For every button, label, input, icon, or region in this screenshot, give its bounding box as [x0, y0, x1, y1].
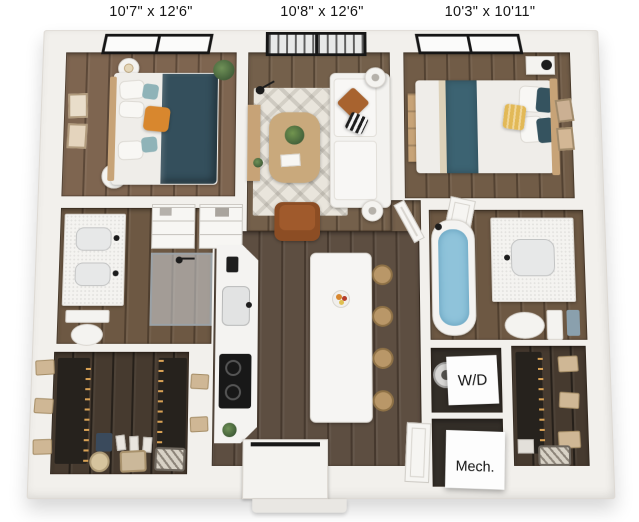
toilet-tank	[65, 310, 109, 323]
pillow-orange	[143, 105, 171, 132]
clock	[541, 60, 552, 70]
linen-closet	[151, 204, 195, 249]
shower-arm	[181, 258, 195, 260]
door-panel	[410, 428, 426, 478]
kitchen-faucet	[246, 302, 252, 308]
floor-plan-render: W/D Mech.	[0, 8, 639, 520]
wall-art	[66, 123, 87, 148]
pillow	[118, 100, 145, 118]
window-pane	[469, 37, 520, 52]
window-pane	[418, 37, 469, 52]
toilet-tank	[546, 310, 563, 340]
window-pane	[105, 37, 158, 52]
pillow-yellow	[502, 103, 526, 130]
bathtub-water	[438, 229, 470, 326]
stored-item	[160, 208, 172, 216]
bar-stool	[372, 306, 393, 327]
entry-console	[251, 442, 320, 446]
throw-blanket-teal	[445, 80, 478, 173]
plant	[253, 158, 263, 168]
duvet-teal	[160, 74, 218, 184]
pillow-teal	[142, 83, 160, 100]
plant	[213, 60, 235, 81]
shoes	[115, 434, 126, 451]
lamp-finial	[368, 207, 376, 215]
bar-stool	[372, 348, 393, 369]
stored-item	[518, 439, 535, 453]
plant	[222, 423, 236, 437]
bedroom-left-window	[101, 34, 214, 54]
storage-box	[557, 355, 578, 372]
plant	[285, 126, 305, 145]
storage-box	[559, 392, 580, 410]
mechanical-label: Mech.	[445, 430, 505, 490]
storage-box	[190, 374, 209, 390]
storage-box	[35, 359, 55, 375]
faucet	[504, 255, 510, 261]
burner	[225, 360, 241, 376]
entry-vestibule	[242, 439, 328, 499]
kitchen-island	[310, 253, 373, 423]
basket-striped	[154, 447, 186, 472]
door-pane	[318, 35, 364, 54]
burner	[225, 384, 241, 400]
shower	[149, 253, 212, 326]
bar-stool	[372, 264, 393, 285]
sink	[74, 262, 111, 286]
pillow	[118, 140, 144, 160]
stored-item	[215, 208, 229, 217]
wall-art	[555, 98, 575, 122]
coffee-maker	[226, 257, 238, 273]
towel	[566, 310, 580, 336]
wall-art	[68, 93, 88, 118]
coffee-table	[269, 112, 320, 183]
wall-art	[556, 127, 575, 151]
lounge-chair-seat	[279, 205, 315, 230]
bedroom-right-window	[415, 34, 524, 54]
sofa-cushion	[334, 141, 378, 200]
entry-step	[252, 499, 347, 513]
fruit	[339, 300, 344, 305]
lamp-finial	[371, 74, 379, 81]
washer-dryer-label: W/D	[446, 355, 499, 405]
folded-clothes	[96, 433, 113, 451]
tub-faucet	[435, 223, 442, 230]
floor-plan: 10'7" x 12'6" 10'8" x 12'6" 10'3" x 10'1…	[0, 0, 639, 522]
sink	[75, 227, 111, 250]
storage-box	[190, 416, 209, 432]
bar-stool	[373, 390, 394, 411]
front-door	[404, 422, 431, 483]
basket	[120, 450, 147, 473]
storage-box	[33, 398, 54, 414]
toilet-bowl	[504, 312, 545, 339]
storage-box	[33, 439, 52, 455]
pillow-teal	[141, 136, 158, 153]
balcony-door	[266, 32, 367, 56]
pillow	[119, 79, 146, 100]
media-console	[247, 105, 260, 181]
sink	[511, 239, 556, 276]
kitchen-counter	[214, 245, 258, 443]
window-pane	[157, 37, 210, 52]
basket-striped	[538, 445, 571, 466]
door-pane	[269, 35, 315, 54]
book	[280, 153, 300, 167]
